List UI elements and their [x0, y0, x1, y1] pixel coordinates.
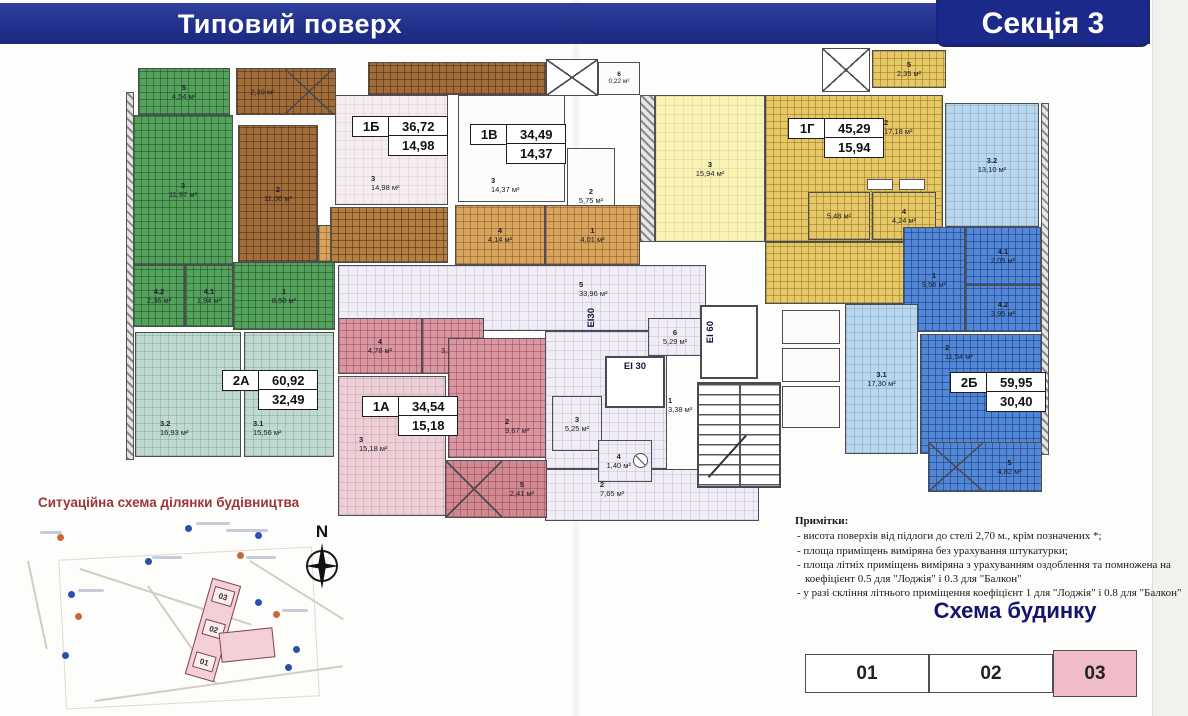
room-green-main: 311,97 м²: [133, 115, 233, 265]
note-item: висота поверхів від підлоги до стелі 2,7…: [795, 529, 1187, 543]
scheme-section-03-highlighted: 03: [1053, 650, 1137, 697]
room-hall-1b: [330, 207, 448, 263]
room-green-41: 4.11,94 м²: [185, 265, 233, 327]
room-2b-42: 4.23,95 м²: [965, 285, 1041, 332]
map-label-mark: [152, 556, 182, 559]
section-title: Секція 3: [982, 7, 1105, 41]
map-label-mark: [40, 531, 62, 534]
shaft-x-icon: [285, 69, 333, 114]
site-map-title: Ситуаційна схема ділянки будівництва: [38, 495, 299, 510]
room-1v-1: 14,01 м²: [545, 205, 640, 265]
room-1a-balcony: 52,41 м²: [445, 460, 547, 518]
shaft-x-icon: [446, 461, 502, 517]
scheme-section-label: 01: [856, 663, 877, 685]
elevator-ei30: ЕІ 30: [605, 356, 665, 408]
building-scheme-title: Схема будинку: [900, 598, 1130, 624]
building-section-01: 01: [192, 651, 217, 672]
map-pin: [293, 646, 300, 653]
elevator-ei60: ЕІ 60: [700, 305, 758, 379]
page-edge: [1152, 0, 1188, 716]
map-pin: [75, 613, 82, 620]
map-pin: [237, 552, 244, 559]
ei30-wall-label: ЕІ30: [586, 308, 597, 328]
utility-room: [782, 310, 840, 344]
notes-block: Примітки: висота поверхів від підлоги до…: [795, 514, 1187, 601]
building-section-03: 03: [211, 586, 236, 607]
scanned-floor-plan-page: Типовий поверх Секція 3 54,54 м² 2,39 м²…: [0, 0, 1188, 716]
road: [27, 561, 48, 649]
room-brown-2: 211,06 м²: [238, 125, 318, 262]
bath-fixture: [867, 179, 893, 190]
room-1a-4: 44,78 м²: [338, 318, 422, 374]
compass-icon: [302, 542, 342, 590]
room-1g-bath: 5,48 м²: [808, 192, 870, 240]
elevator-shaft-top: [822, 48, 870, 92]
apt-label-1g: 1Г 45,29 15,94: [788, 118, 884, 158]
wall-center: [640, 95, 655, 242]
staircase: [697, 382, 781, 488]
compass-north-label: N: [300, 522, 344, 542]
room-brown-balcony: 2,39 м²: [236, 68, 336, 115]
apt-label-2a: 2А 60,92 32,49: [222, 370, 318, 410]
compass-rose-icon: N: [300, 522, 344, 595]
page-title: Типовий поверх: [140, 9, 440, 40]
vent-shaft: [546, 59, 598, 96]
note-item: площа літніх приміщень виміряна з урахув…: [795, 558, 1187, 587]
map-pin: [145, 558, 152, 565]
shaft-x-icon: [547, 60, 597, 95]
utility-room: [782, 348, 840, 382]
map-label-mark: [196, 522, 230, 525]
map-pin: [285, 664, 292, 671]
map-label-mark: [282, 609, 308, 612]
notes-title: Примітки:: [795, 514, 1187, 528]
site-boundary: [58, 546, 320, 709]
map-pin: [68, 591, 75, 598]
scheme-section-label: 03: [1084, 663, 1105, 685]
map-label-mark: [78, 589, 104, 592]
map-pin: [62, 652, 69, 659]
apt-label-1a: 1А 34,54 15,18: [362, 396, 458, 436]
notes-list: висота поверхів від підлоги до стелі 2,7…: [795, 529, 1187, 600]
scheme-section-02: 02: [929, 654, 1053, 693]
room-1v-4: 44,14 м²: [455, 205, 545, 265]
apt-label-1v: 1В 34,49 14,37: [470, 124, 566, 164]
utility-room: [782, 386, 840, 428]
map-label-mark: [246, 556, 276, 559]
section-badge: Секція 3: [936, 0, 1150, 47]
room-1g-living: 315,94 м²: [655, 95, 765, 242]
building-bar: 03 02 01: [185, 578, 241, 682]
apt-label-2b: 2Б 59,95 30,40: [950, 372, 1046, 412]
note-item: площа приміщень виміряна без урахування …: [795, 544, 1187, 558]
building-wing: [219, 627, 276, 662]
shaft-x-icon: [823, 49, 869, 91]
map-pin: [255, 532, 262, 539]
room-2b-balcony: 54,82 м²: [928, 442, 1042, 492]
room-2b-32: 3.213,10 м²: [945, 103, 1039, 227]
bath-fixture: [899, 179, 925, 190]
apt-label-1b: 1Б 36,72 14,98: [352, 116, 448, 156]
map-pin: [185, 525, 192, 532]
room-1g-hall: [765, 242, 905, 304]
map-pin: [57, 534, 64, 541]
room-common-6: 65,29 м²: [648, 318, 702, 356]
wc-icon: [633, 453, 648, 468]
room-common-3: 35,25 м²: [552, 396, 602, 451]
room-2b-41: 4.12,05 м²: [965, 227, 1041, 285]
room-green-1: 18,50 м²: [233, 262, 335, 330]
room-1a-2: 29,67 м²: [448, 338, 546, 458]
room-top-loggia: [368, 62, 546, 95]
room-green-balcony: 54,54 м²: [138, 68, 230, 115]
scheme-section-01: 01: [805, 654, 929, 693]
scheme-section-label: 02: [980, 663, 1001, 685]
room-vent: 60,22 м²: [598, 62, 640, 95]
room-green-42: 4.22,36 м²: [133, 265, 185, 327]
shaft-x-icon: [929, 443, 983, 491]
map-label-mark: [226, 529, 268, 532]
room-common-wc: 41,40 м²: [598, 440, 652, 482]
building-footprint: 03 02 01: [190, 578, 280, 683]
building-scheme: 01 02 03: [805, 650, 1137, 697]
room-yellow-balcony: 52,35 м²: [872, 50, 946, 88]
room-2b-31: 3.117,30 м²: [845, 304, 918, 454]
